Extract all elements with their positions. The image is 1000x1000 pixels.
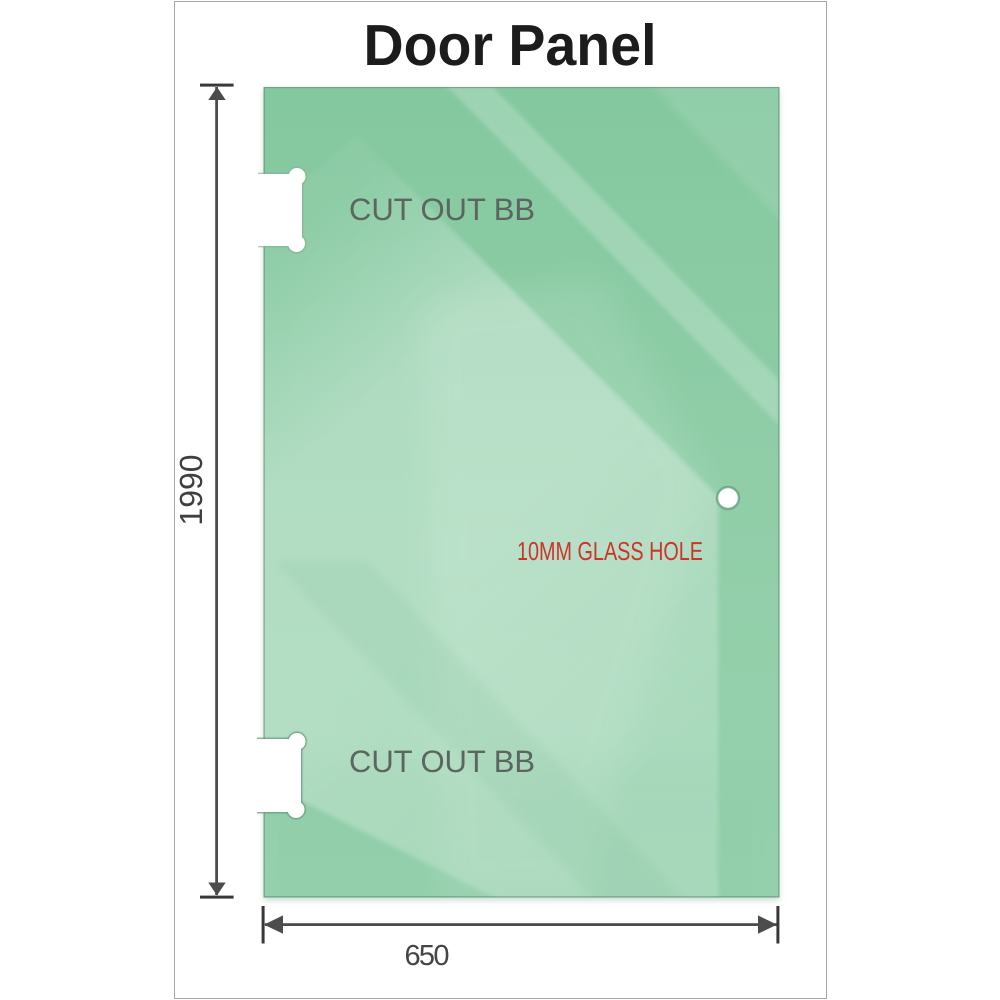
svg-text:650: 650 — [405, 940, 450, 972]
svg-text:CUT OUT BB: CUT OUT BB — [349, 192, 535, 227]
svg-text:Door Panel: Door Panel — [364, 13, 657, 78]
svg-text:1990: 1990 — [173, 454, 209, 525]
svg-text:10MM GLASS HOLE: 10MM GLASS HOLE — [517, 536, 703, 566]
svg-text:CUT OUT BB: CUT OUT BB — [349, 744, 535, 779]
